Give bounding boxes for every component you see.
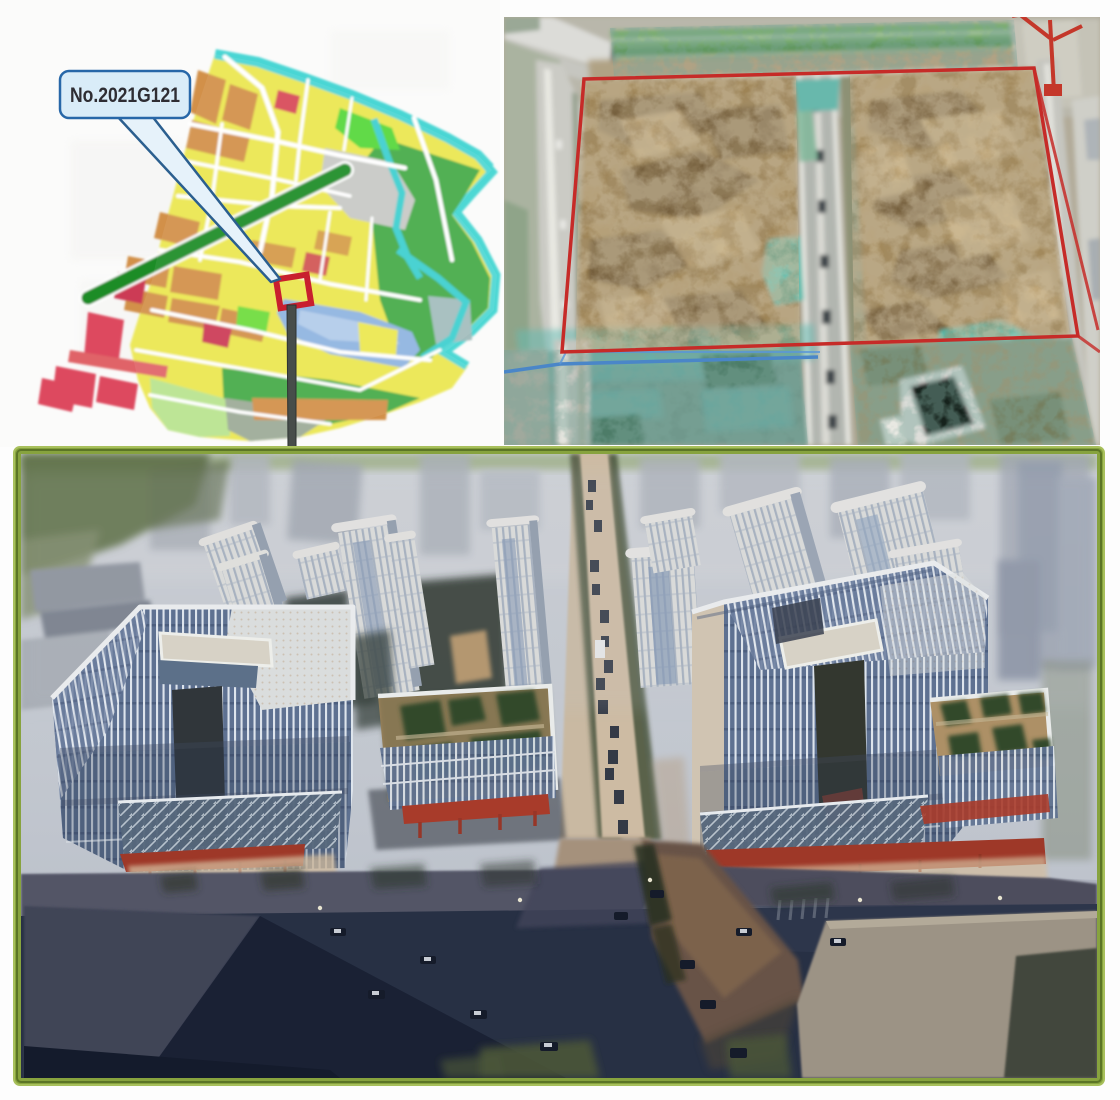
svg-text:No.2021G121: No.2021G121	[70, 84, 180, 107]
